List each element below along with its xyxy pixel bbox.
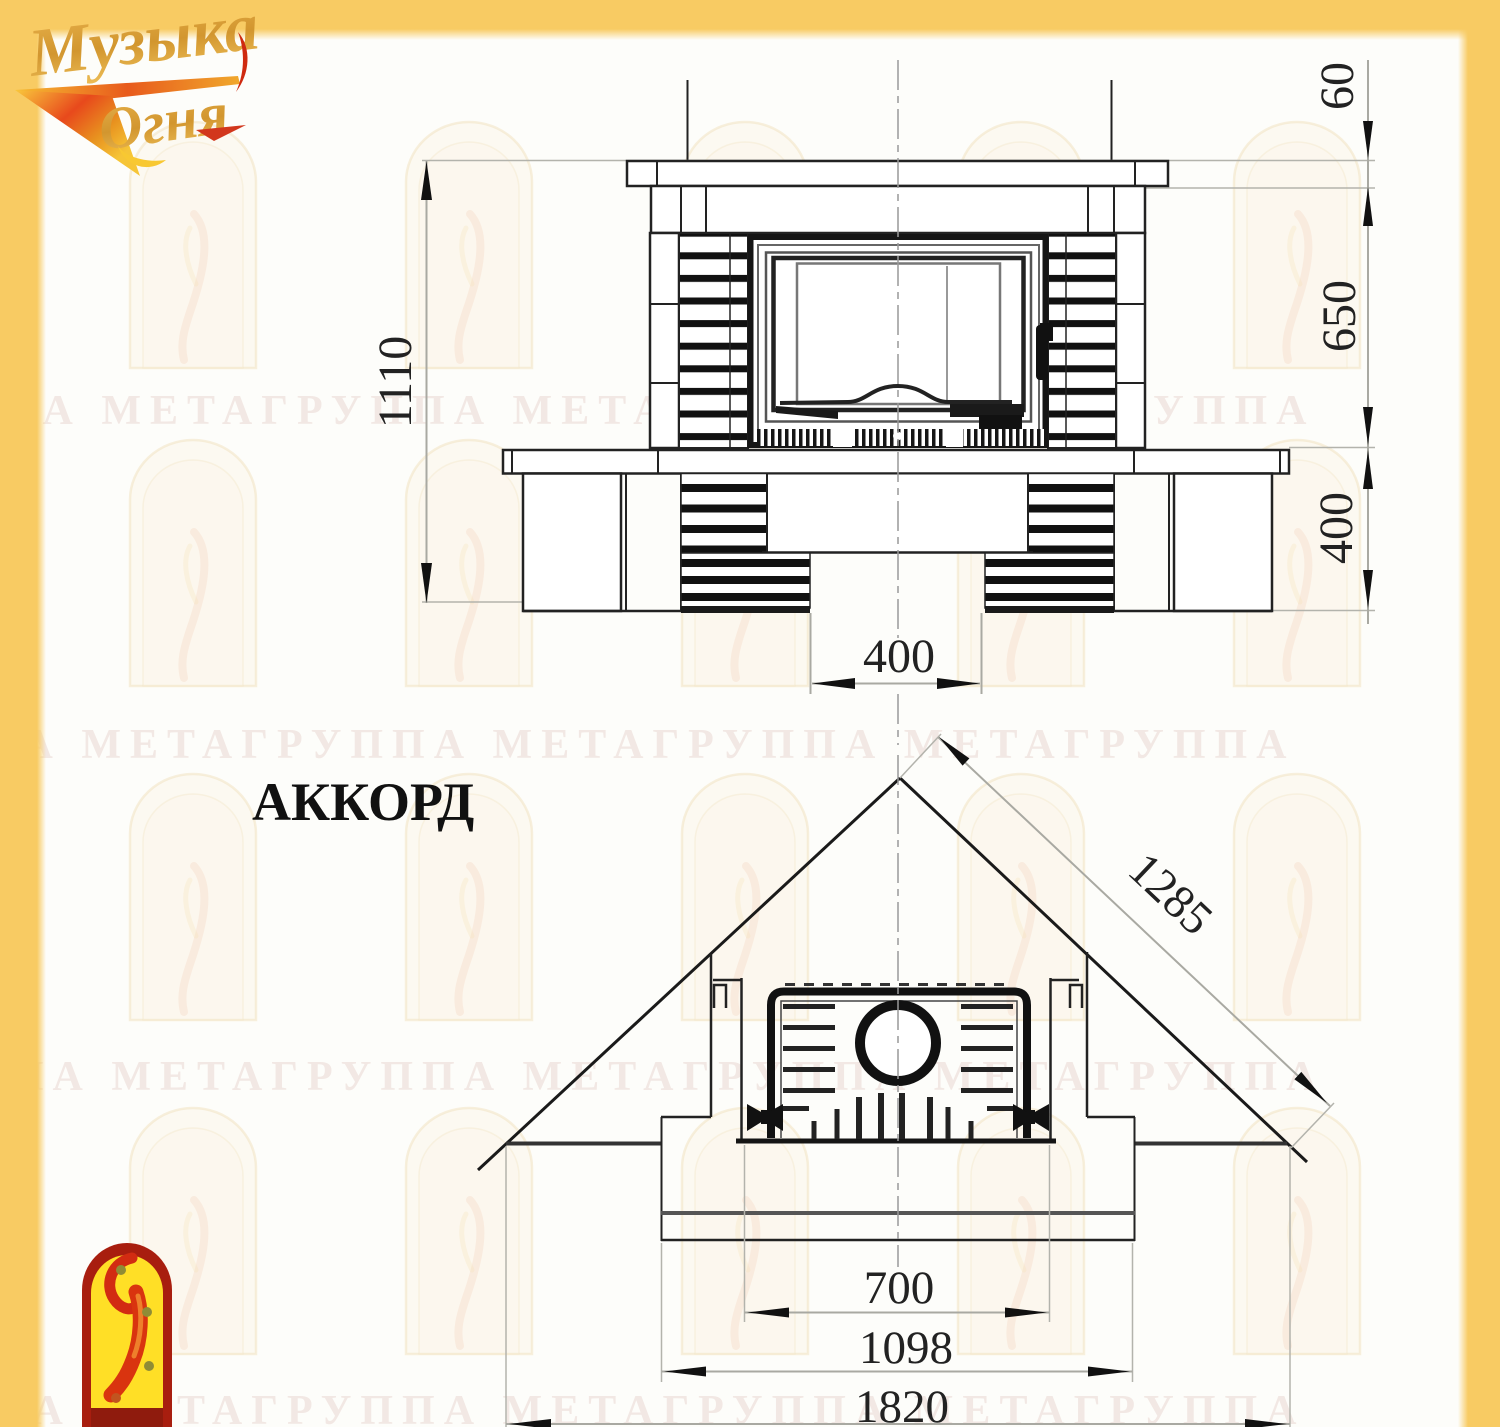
svg-text:ГРУППА МЕТАГРУППА МЕТАГРУППА М: ГРУППА МЕТАГРУППА МЕТАГРУППА МЕТАГРУППА: [0, 1388, 1306, 1427]
svg-text:АККОРД: АККОРД: [252, 772, 474, 832]
svg-text:650: 650: [1313, 280, 1366, 352]
svg-text:ГРУППА МЕТАГРУППА МЕТАГРУППА М: ГРУППА МЕТАГРУППА МЕТАГРУППА МЕТАГРУППА: [0, 722, 1296, 768]
svg-text:400: 400: [1310, 492, 1363, 564]
svg-text:700: 700: [864, 1262, 935, 1314]
svg-text:1098: 1098: [859, 1322, 953, 1374]
svg-text:400: 400: [863, 630, 935, 683]
svg-text:1820: 1820: [855, 1381, 949, 1427]
svg-text:1110: 1110: [369, 336, 422, 428]
svg-text:60: 60: [1311, 62, 1364, 110]
svg-text:ГРУППА МЕТАГРУППА МЕТАГРУППА М: ГРУППА МЕТАГРУППА МЕТАГРУППА МЕТАГРУППА: [0, 1054, 1326, 1100]
